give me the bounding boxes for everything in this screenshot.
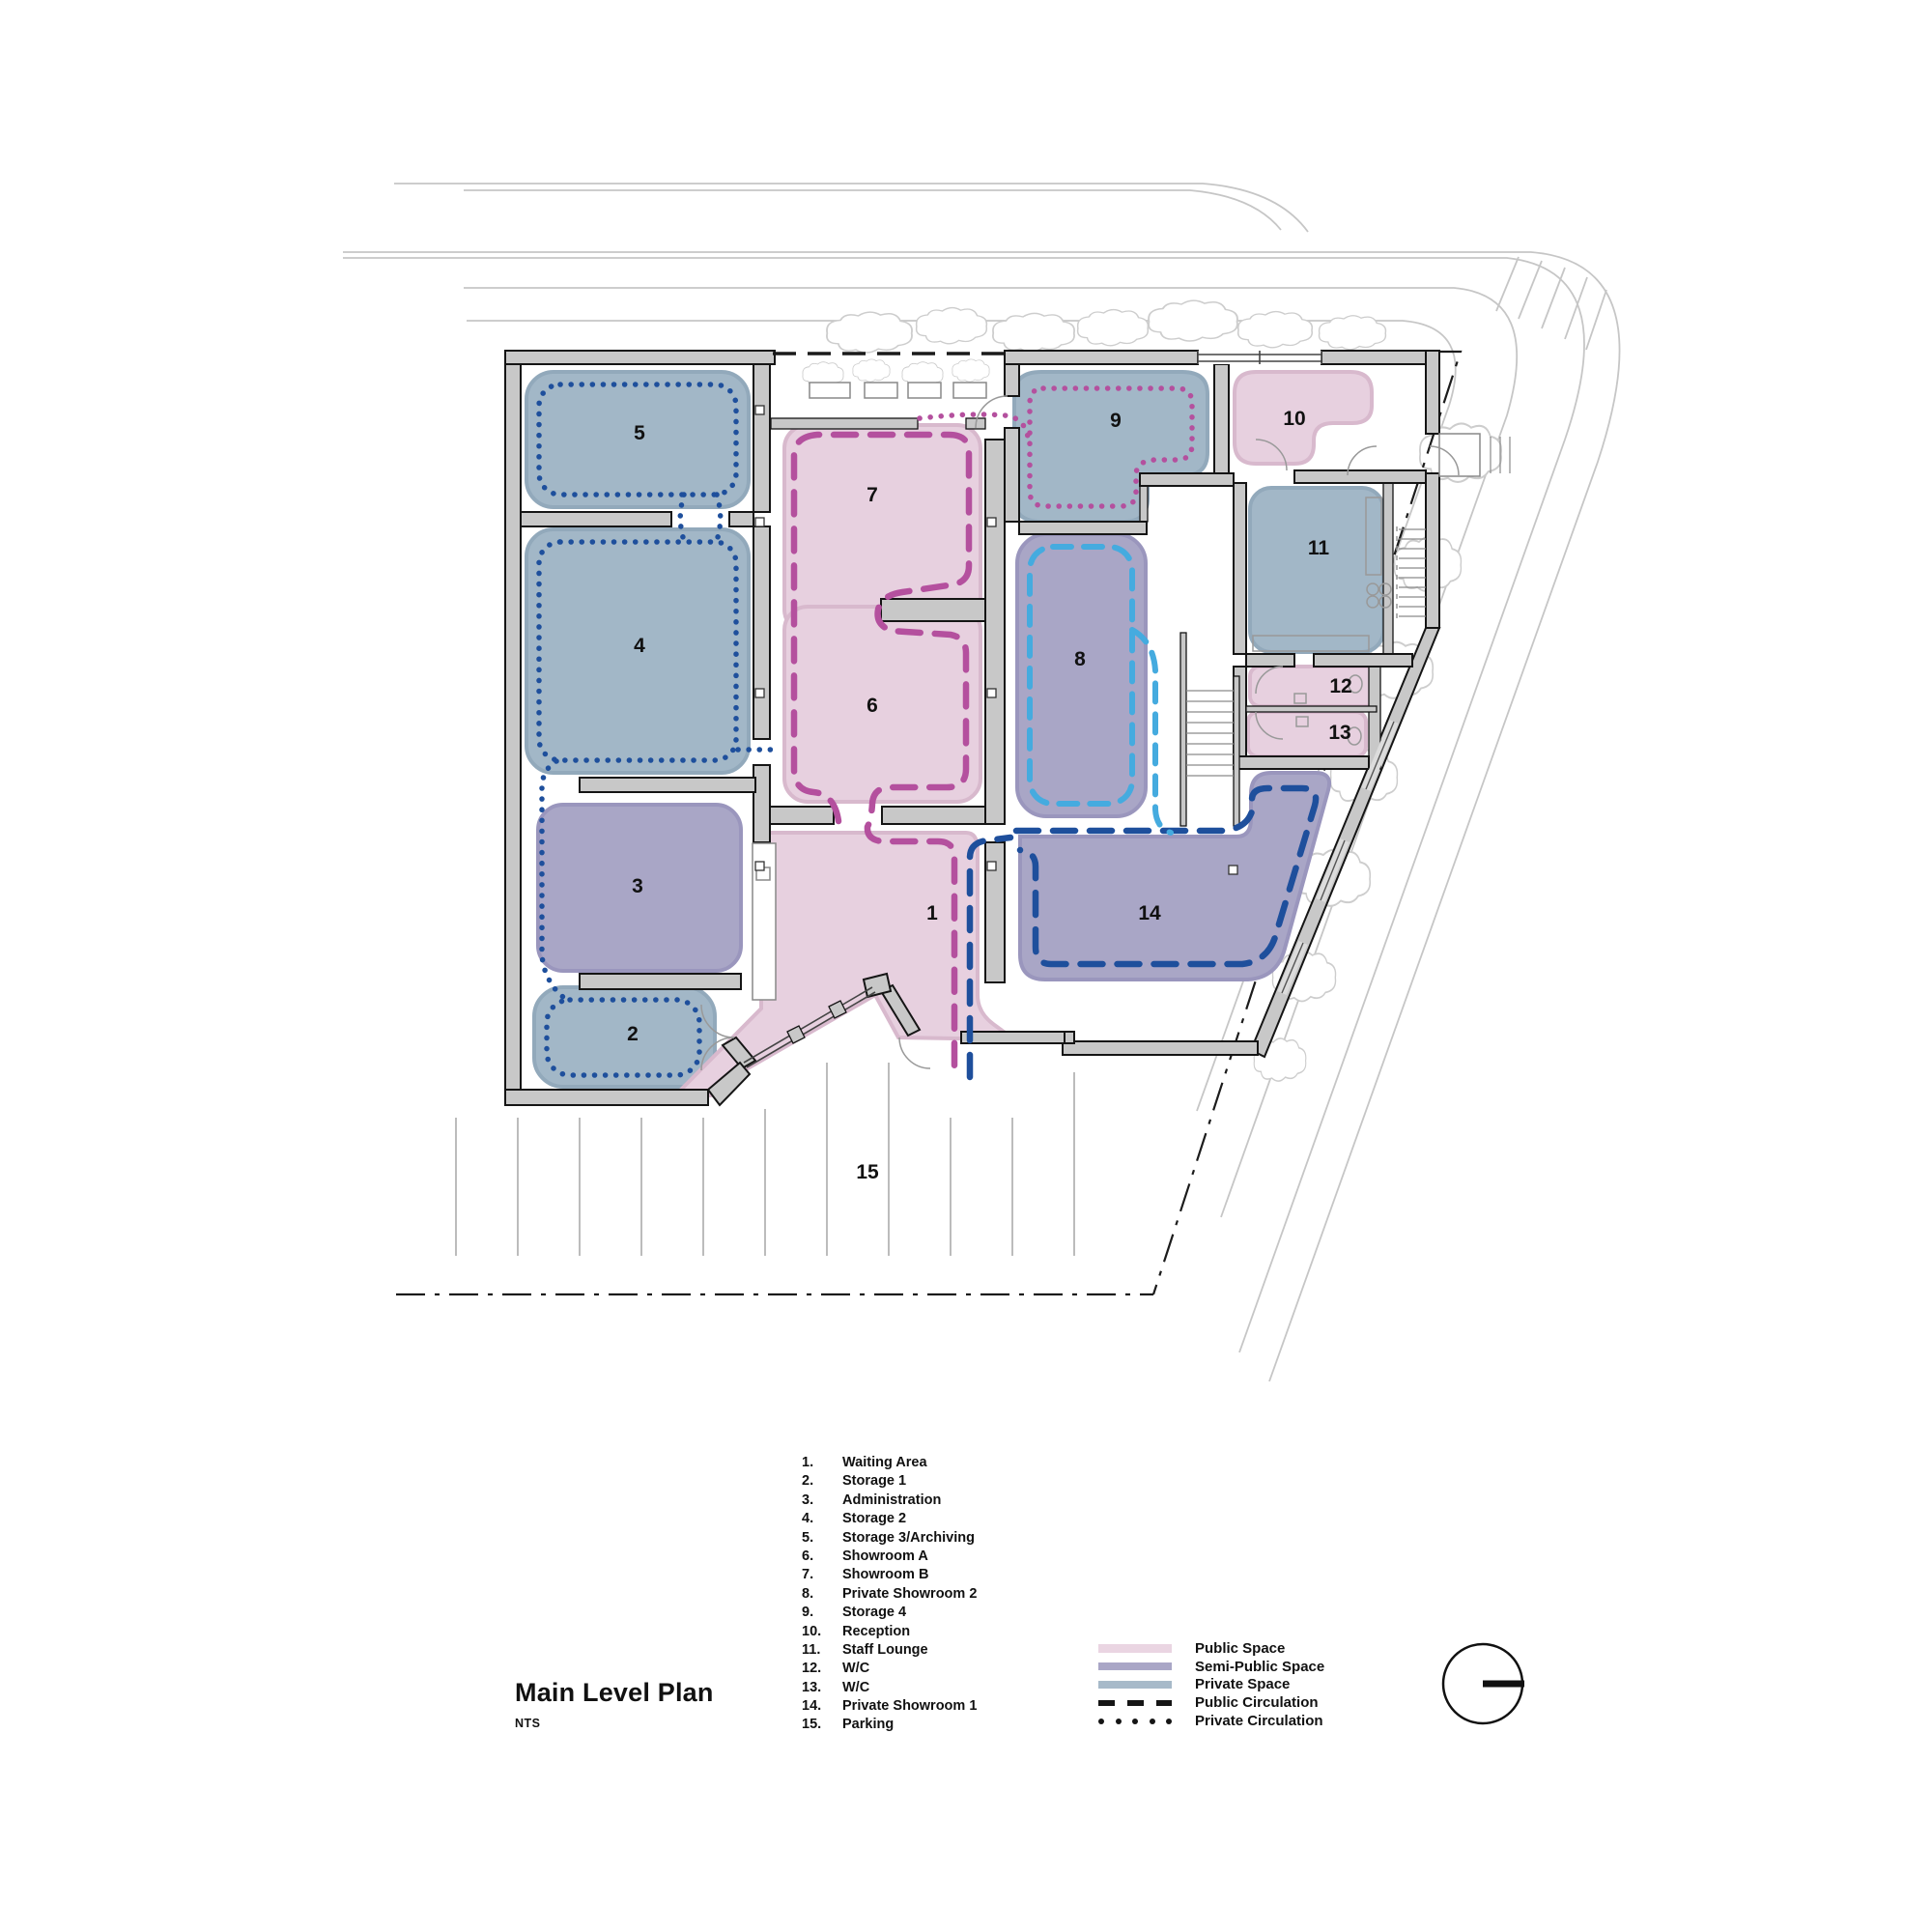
room-list-number: 13.: [802, 1680, 842, 1698]
main-level-plan-sheet: 1 2 3 4 5 6 7 8 9 10 11 12 13 14 15 Main…: [0, 0, 1932, 1932]
room-list-label: Waiting Area: [842, 1455, 927, 1473]
room-list-label: Reception: [842, 1624, 910, 1642]
legend-label: Semi-Public Space: [1195, 1659, 1324, 1675]
room-list-label: W/C: [842, 1680, 869, 1698]
tree-icon: [1149, 300, 1237, 341]
legend-label: Private Space: [1195, 1676, 1290, 1692]
room-5-number: 5: [634, 422, 645, 444]
room-list-number: 3.: [802, 1492, 842, 1511]
room-list-label: Showroom A: [842, 1548, 928, 1567]
room-list-number: 7.: [802, 1567, 842, 1585]
room-list-number: 8.: [802, 1586, 842, 1605]
legend-item-public-space: Public Space: [1098, 1639, 1324, 1658]
room-4-number: 4: [634, 635, 645, 657]
room-list-label: Private Showroom 1: [842, 1698, 977, 1717]
room-list-item: 14.Private Showroom 1: [802, 1698, 977, 1717]
private-space-swatch: [1098, 1681, 1172, 1690]
room-8-fill: [1017, 534, 1146, 816]
room-list-item: 7.Showroom B: [802, 1567, 977, 1585]
tree-icon: [917, 308, 987, 344]
tree-icon: [1078, 310, 1149, 346]
room-2-number: 2: [627, 1023, 639, 1045]
room-15-number: 15: [856, 1161, 879, 1183]
room-list-label: Storage 2: [842, 1511, 906, 1529]
public-space-swatch: [1098, 1644, 1172, 1653]
private-circulation-sample: [1098, 1719, 1172, 1724]
room-list-item: 8.Private Showroom 2: [802, 1586, 977, 1605]
room-list-item: 4.Storage 2: [802, 1511, 977, 1529]
room-list-number: 14.: [802, 1698, 842, 1717]
tree-icon: [952, 359, 989, 382]
room-11-number: 11: [1308, 537, 1330, 559]
legend-item-semi-public-space: Semi-Public Space: [1098, 1658, 1324, 1676]
room-list-number: 5.: [802, 1530, 842, 1548]
tree-icon: [1238, 312, 1313, 348]
room-list-label: Private Showroom 2: [842, 1586, 977, 1605]
title-block: Main Level Plan NTS: [515, 1678, 714, 1730]
room-list-number: 15.: [802, 1717, 842, 1735]
legend-label: Public Circulation: [1195, 1694, 1319, 1711]
room-list-item: 2.Storage 1: [802, 1473, 977, 1492]
window-strip: [1198, 351, 1321, 364]
room-list-item: 6.Showroom A: [802, 1548, 977, 1567]
room-list-number: 12.: [802, 1661, 842, 1679]
room-list-item: 13.W/C: [802, 1680, 977, 1698]
public-circulation-sample: [1098, 1700, 1172, 1706]
legend-label: Public Space: [1195, 1640, 1285, 1657]
room-list-item: 10.Reception: [802, 1624, 977, 1642]
room-14-number: 14: [1138, 902, 1161, 924]
room-list-number: 2.: [802, 1473, 842, 1492]
legend-item-private-circulation: Private Circulation: [1098, 1712, 1324, 1730]
central-stair: [1180, 633, 1239, 826]
room-list: 1.Waiting Area 2.Storage 1 3.Administrat…: [802, 1455, 977, 1736]
room-list-label: Storage 4: [842, 1605, 906, 1623]
room-list-label: Administration: [842, 1492, 941, 1511]
room-list-item: 15.Parking: [802, 1717, 977, 1735]
room-list-label: W/C: [842, 1661, 869, 1679]
room-13-number: 13: [1328, 722, 1350, 744]
room-list-number: 4.: [802, 1511, 842, 1529]
room-list-number: 11.: [802, 1642, 842, 1661]
legend-item-private-space: Private Space: [1098, 1676, 1324, 1694]
room-list-label: Parking: [842, 1717, 894, 1735]
room-list-label: Staff Lounge: [842, 1642, 928, 1661]
room-list-label: Storage 1: [842, 1473, 906, 1492]
room-list-number: 6.: [802, 1548, 842, 1567]
legend-label: Private Circulation: [1195, 1713, 1323, 1729]
room-8-number: 8: [1074, 648, 1086, 670]
room-list-item: 9.Storage 4: [802, 1605, 977, 1623]
room-list-item: 11.Staff Lounge: [802, 1642, 977, 1661]
tree-icon: [993, 313, 1074, 352]
room-list-label: Storage 3/Archiving: [842, 1530, 975, 1548]
room-list-number: 10.: [802, 1624, 842, 1642]
room-10-number: 10: [1283, 408, 1305, 430]
room-1-number: 1: [926, 902, 938, 924]
room-3-number: 3: [632, 875, 643, 897]
crosswalk-lines: [1496, 257, 1606, 350]
room-6-number: 6: [867, 695, 878, 717]
room-9-fill: [1014, 372, 1207, 522]
room-12-number: 12: [1329, 675, 1351, 697]
room-list-item: 1.Waiting Area: [802, 1455, 977, 1473]
room-list-number: 9.: [802, 1605, 842, 1623]
room-7-number: 7: [867, 484, 878, 506]
semi-public-space-swatch: [1098, 1662, 1172, 1671]
tree-icon: [827, 312, 912, 353]
legend-item-public-circulation: Public Circulation: [1098, 1693, 1324, 1712]
page-title: Main Level Plan: [515, 1678, 714, 1708]
room-9-number: 9: [1110, 410, 1122, 432]
north-arrow: [1443, 1644, 1524, 1723]
room-12-fill: [1250, 667, 1376, 706]
legend: Public Space Semi-Public Space Private S…: [1098, 1639, 1324, 1730]
plan-scale: NTS: [515, 1717, 714, 1730]
room-list-item: 12.W/C: [802, 1661, 977, 1679]
room-11-fill: [1250, 488, 1383, 652]
room-list-number: 1.: [802, 1455, 842, 1473]
room-list-item: 5.Storage 3/Archiving: [802, 1530, 977, 1548]
room-list-item: 3.Administration: [802, 1492, 977, 1511]
tree-icon: [853, 359, 890, 382]
room-list-label: Showroom B: [842, 1567, 928, 1585]
